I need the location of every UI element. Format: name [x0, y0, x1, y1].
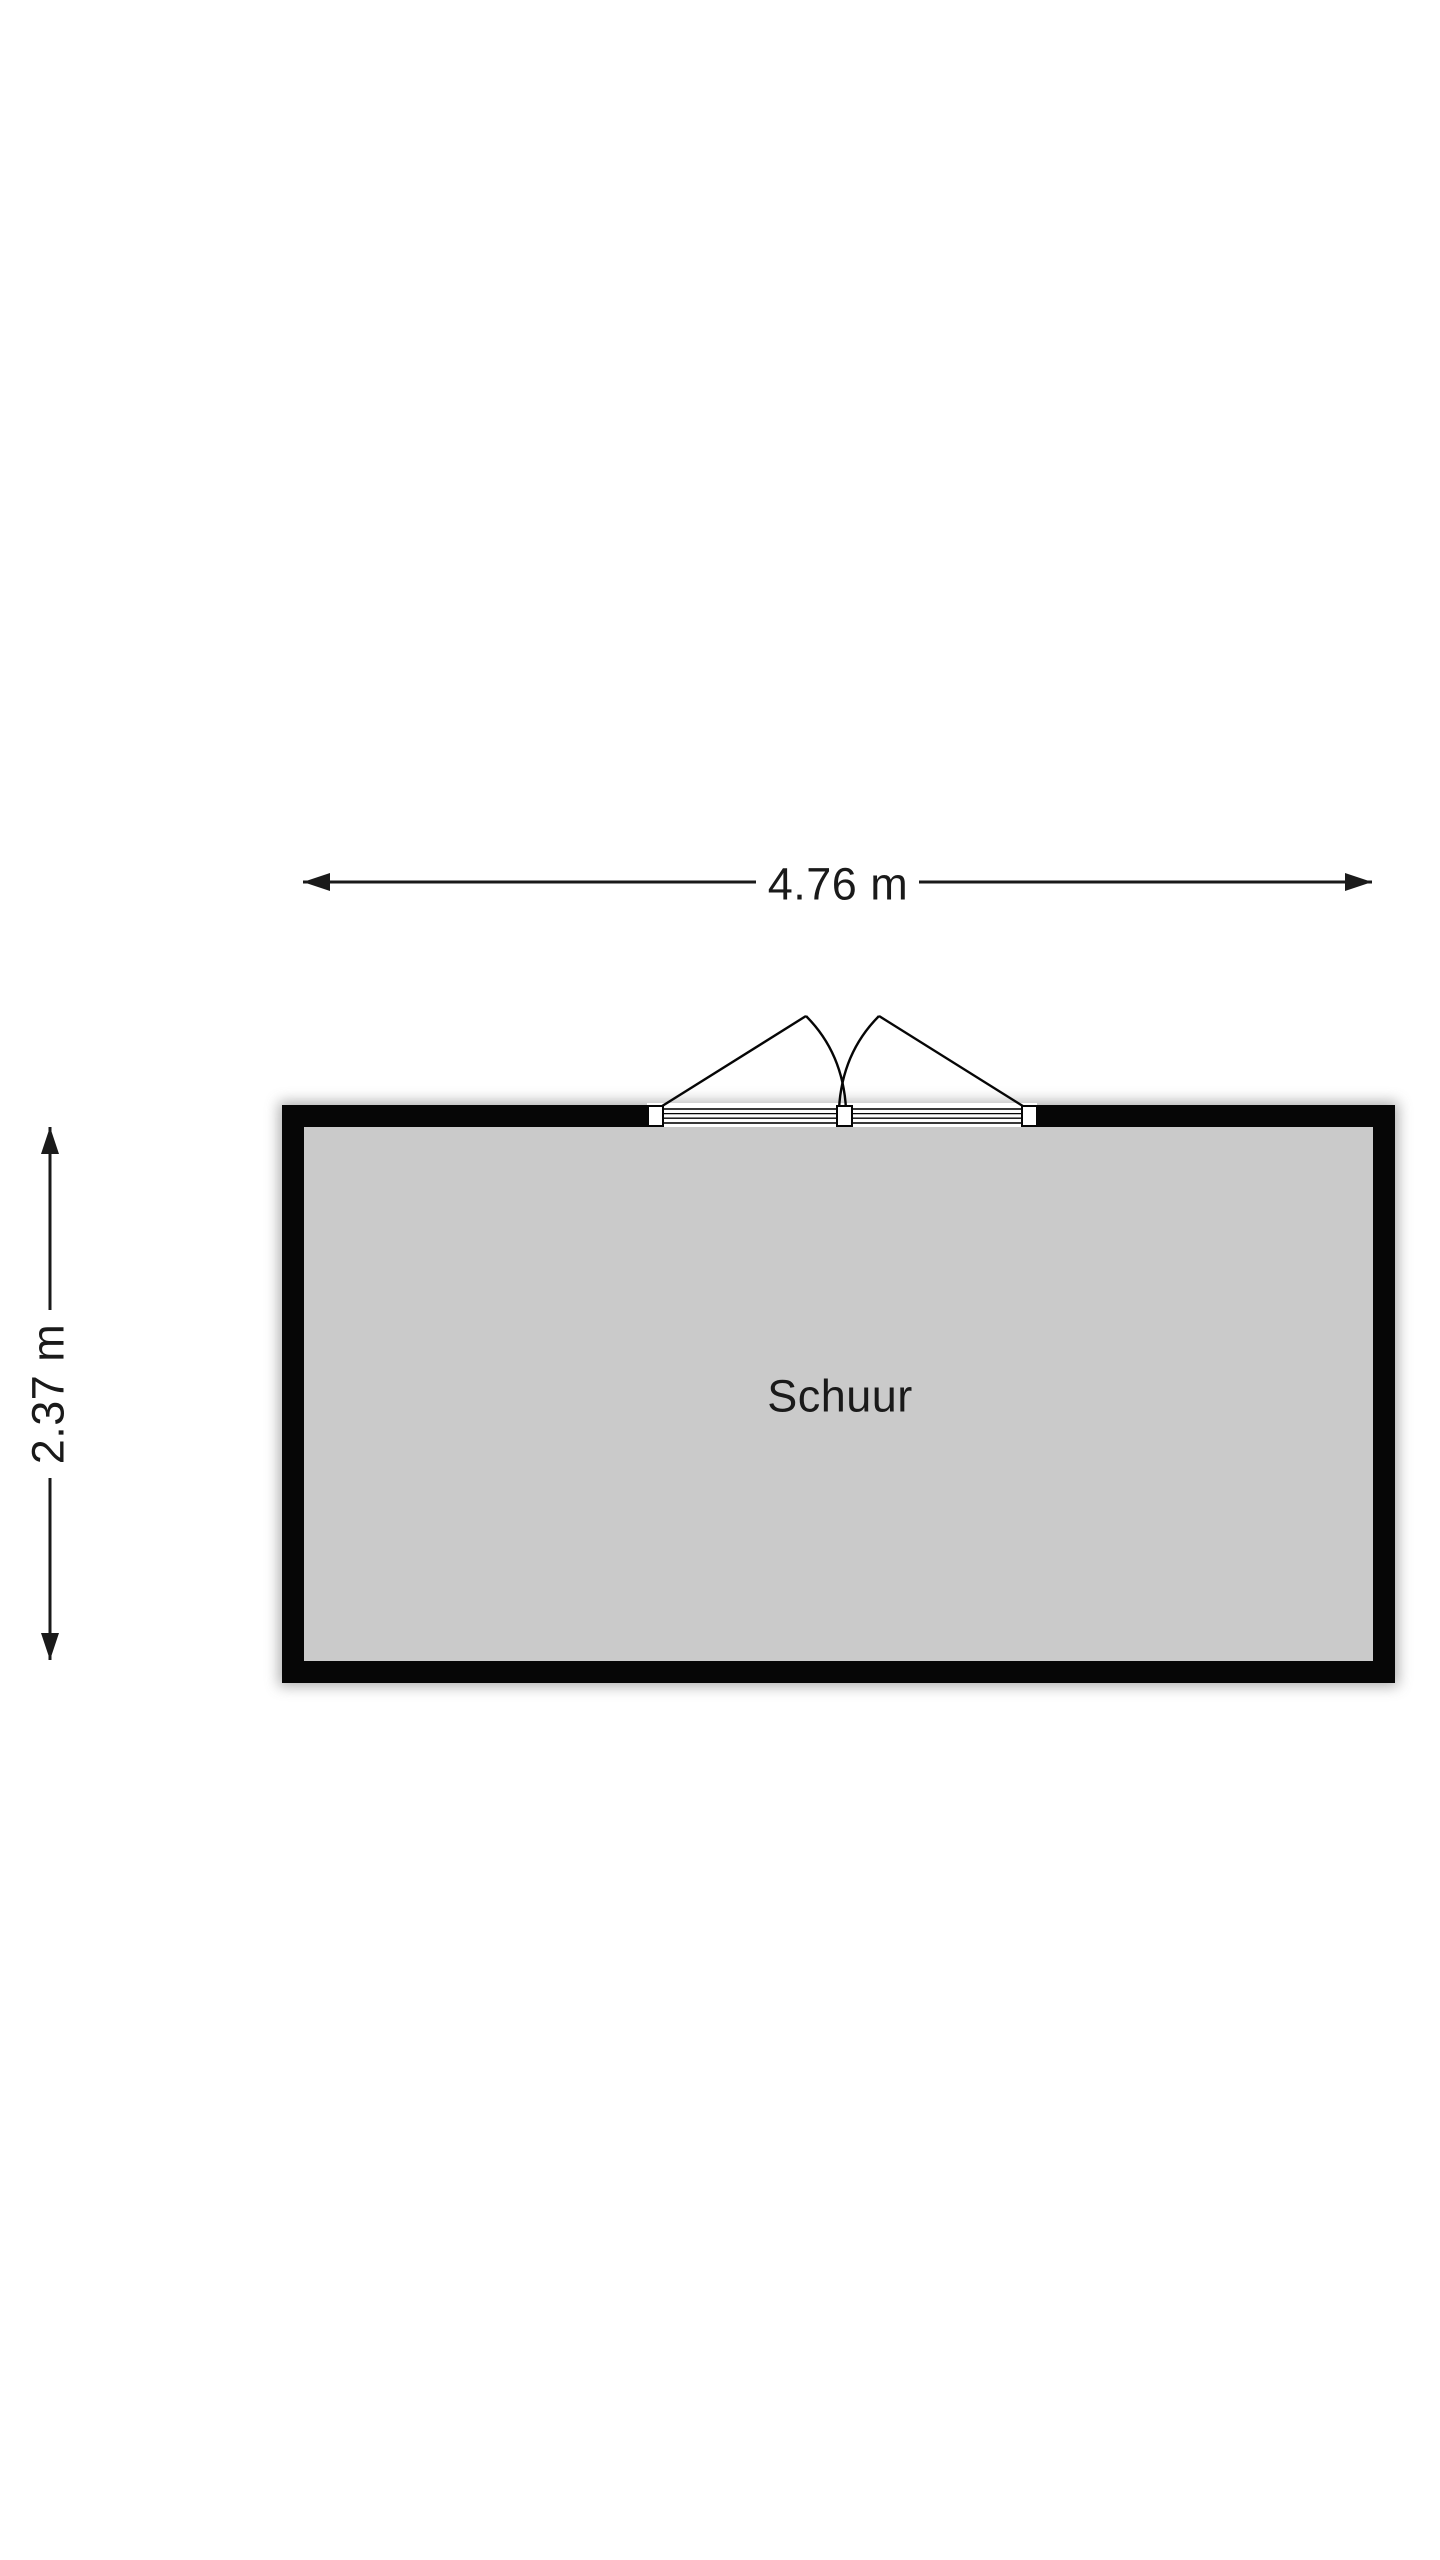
- floorplan-canvas: 4.76 m 2.37 m Schuur: [0, 0, 1440, 2560]
- door-post-left: [648, 1106, 663, 1126]
- door-post-right: [1022, 1106, 1037, 1126]
- arrowhead-up-icon: [41, 1127, 59, 1154]
- building-schuur: [279, 1016, 1398, 1686]
- room-label: Schuur: [767, 1374, 913, 1419]
- arrowhead-right-icon: [1345, 873, 1372, 891]
- door-post-center: [837, 1106, 852, 1126]
- floorplan-drawing: [0, 0, 1440, 2560]
- arrowhead-down-icon: [41, 1633, 59, 1660]
- width-dimension-label: 4.76 m: [768, 862, 909, 907]
- double-door: [647, 1016, 1037, 1127]
- arrowhead-left-icon: [303, 873, 330, 891]
- door-leaf-right: [879, 1016, 1026, 1108]
- door-leaf-left: [659, 1016, 806, 1108]
- height-dimension-label: 2.37 m: [26, 1324, 71, 1465]
